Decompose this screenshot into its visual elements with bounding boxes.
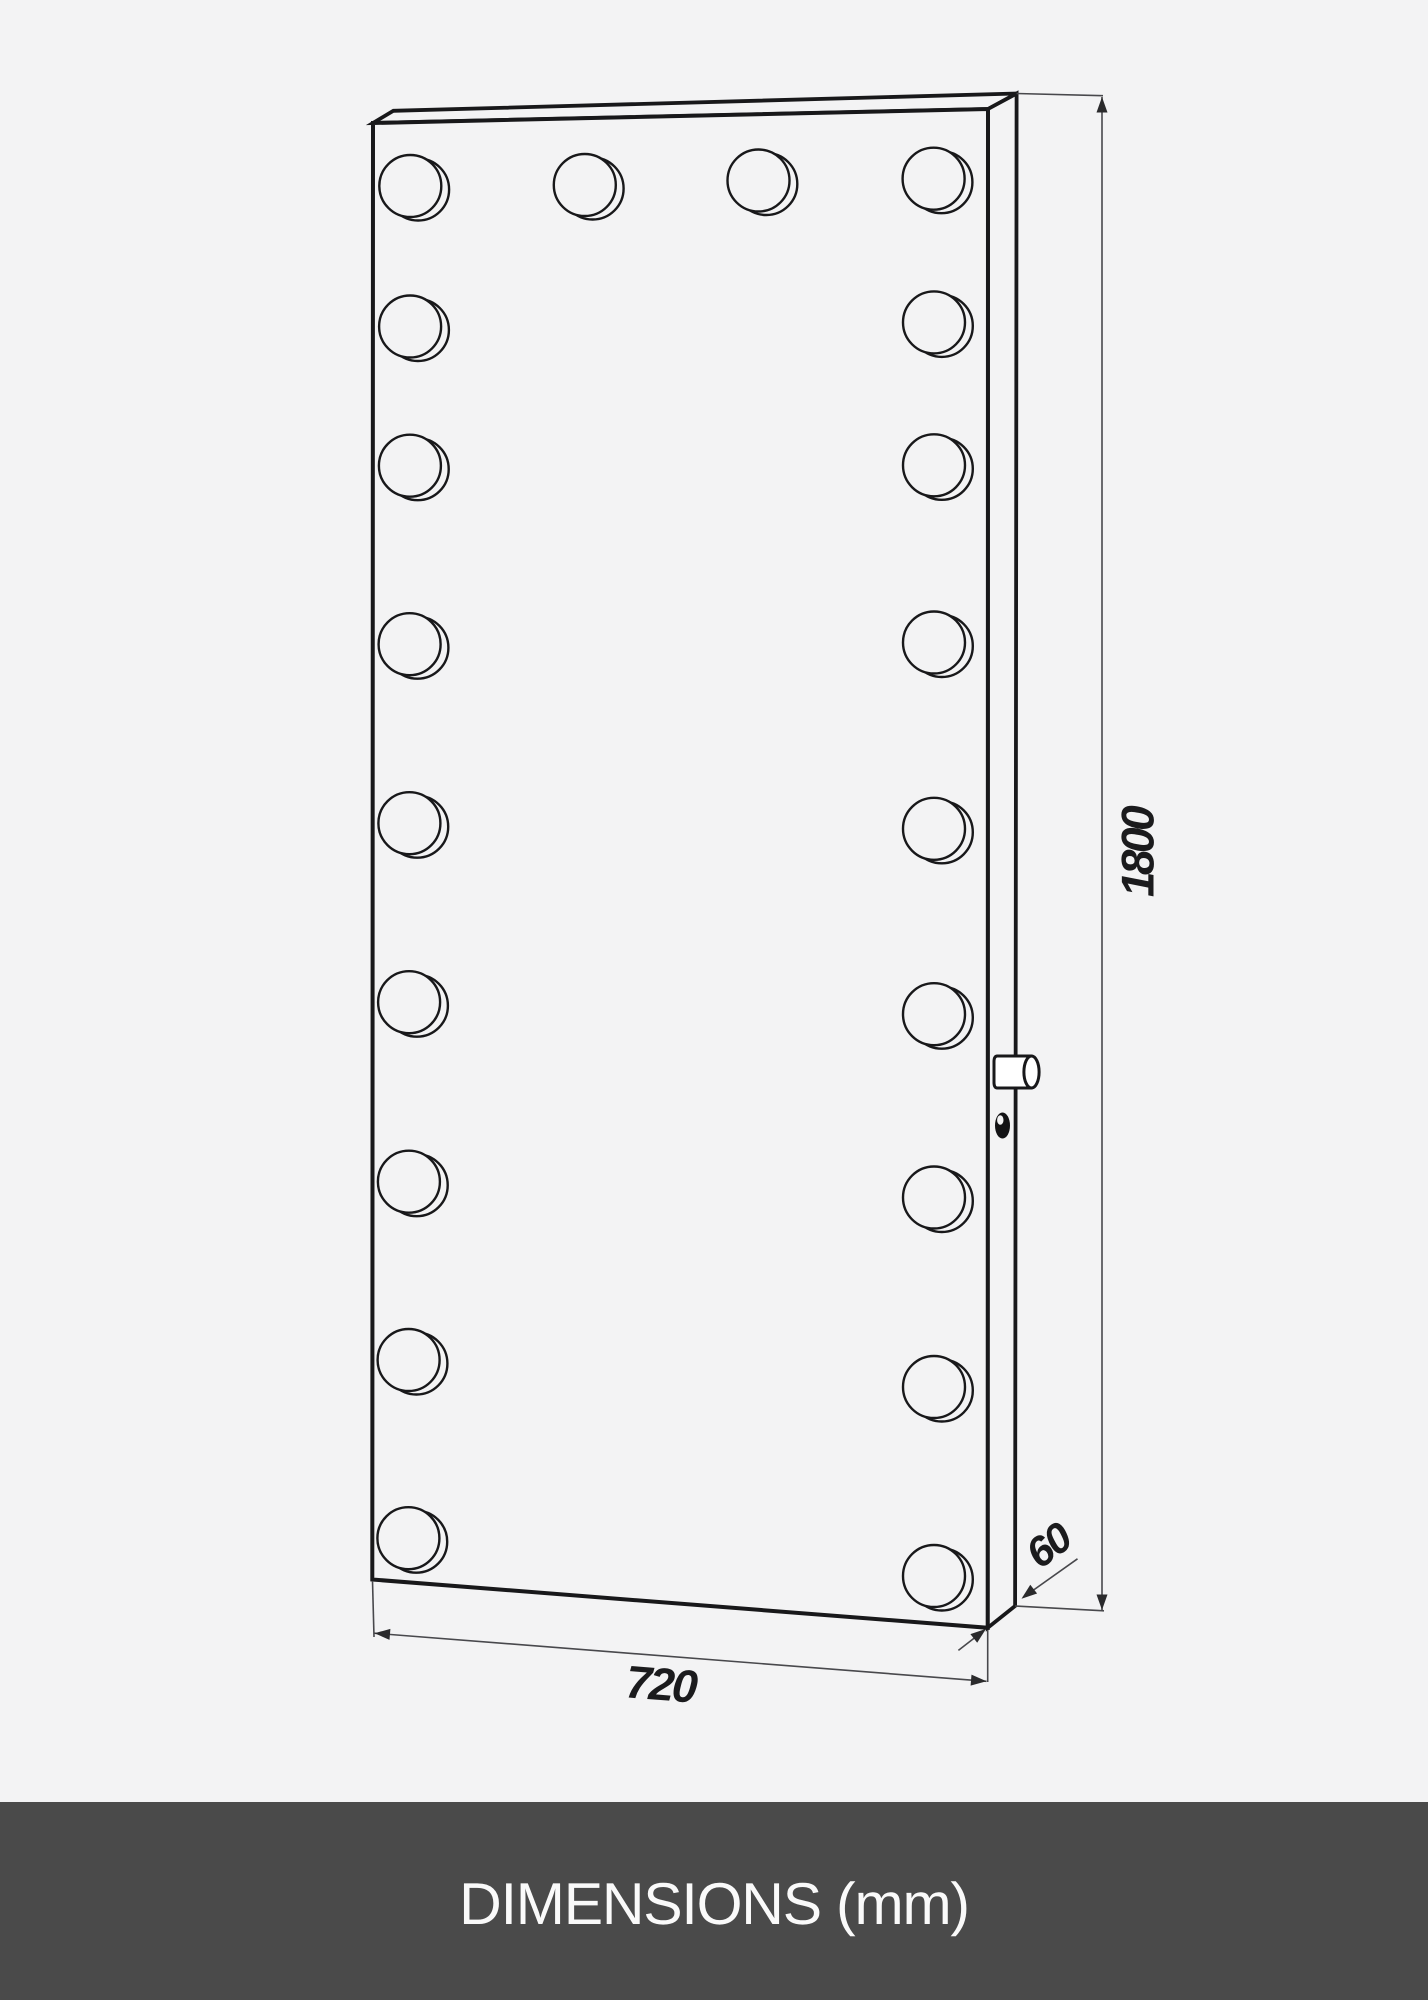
svg-text:1800: 1800: [1112, 805, 1164, 897]
svg-text:720: 720: [624, 1655, 700, 1713]
svg-text:DIMENSIONS (mm): DIMENSIONS (mm): [459, 1871, 969, 1937]
